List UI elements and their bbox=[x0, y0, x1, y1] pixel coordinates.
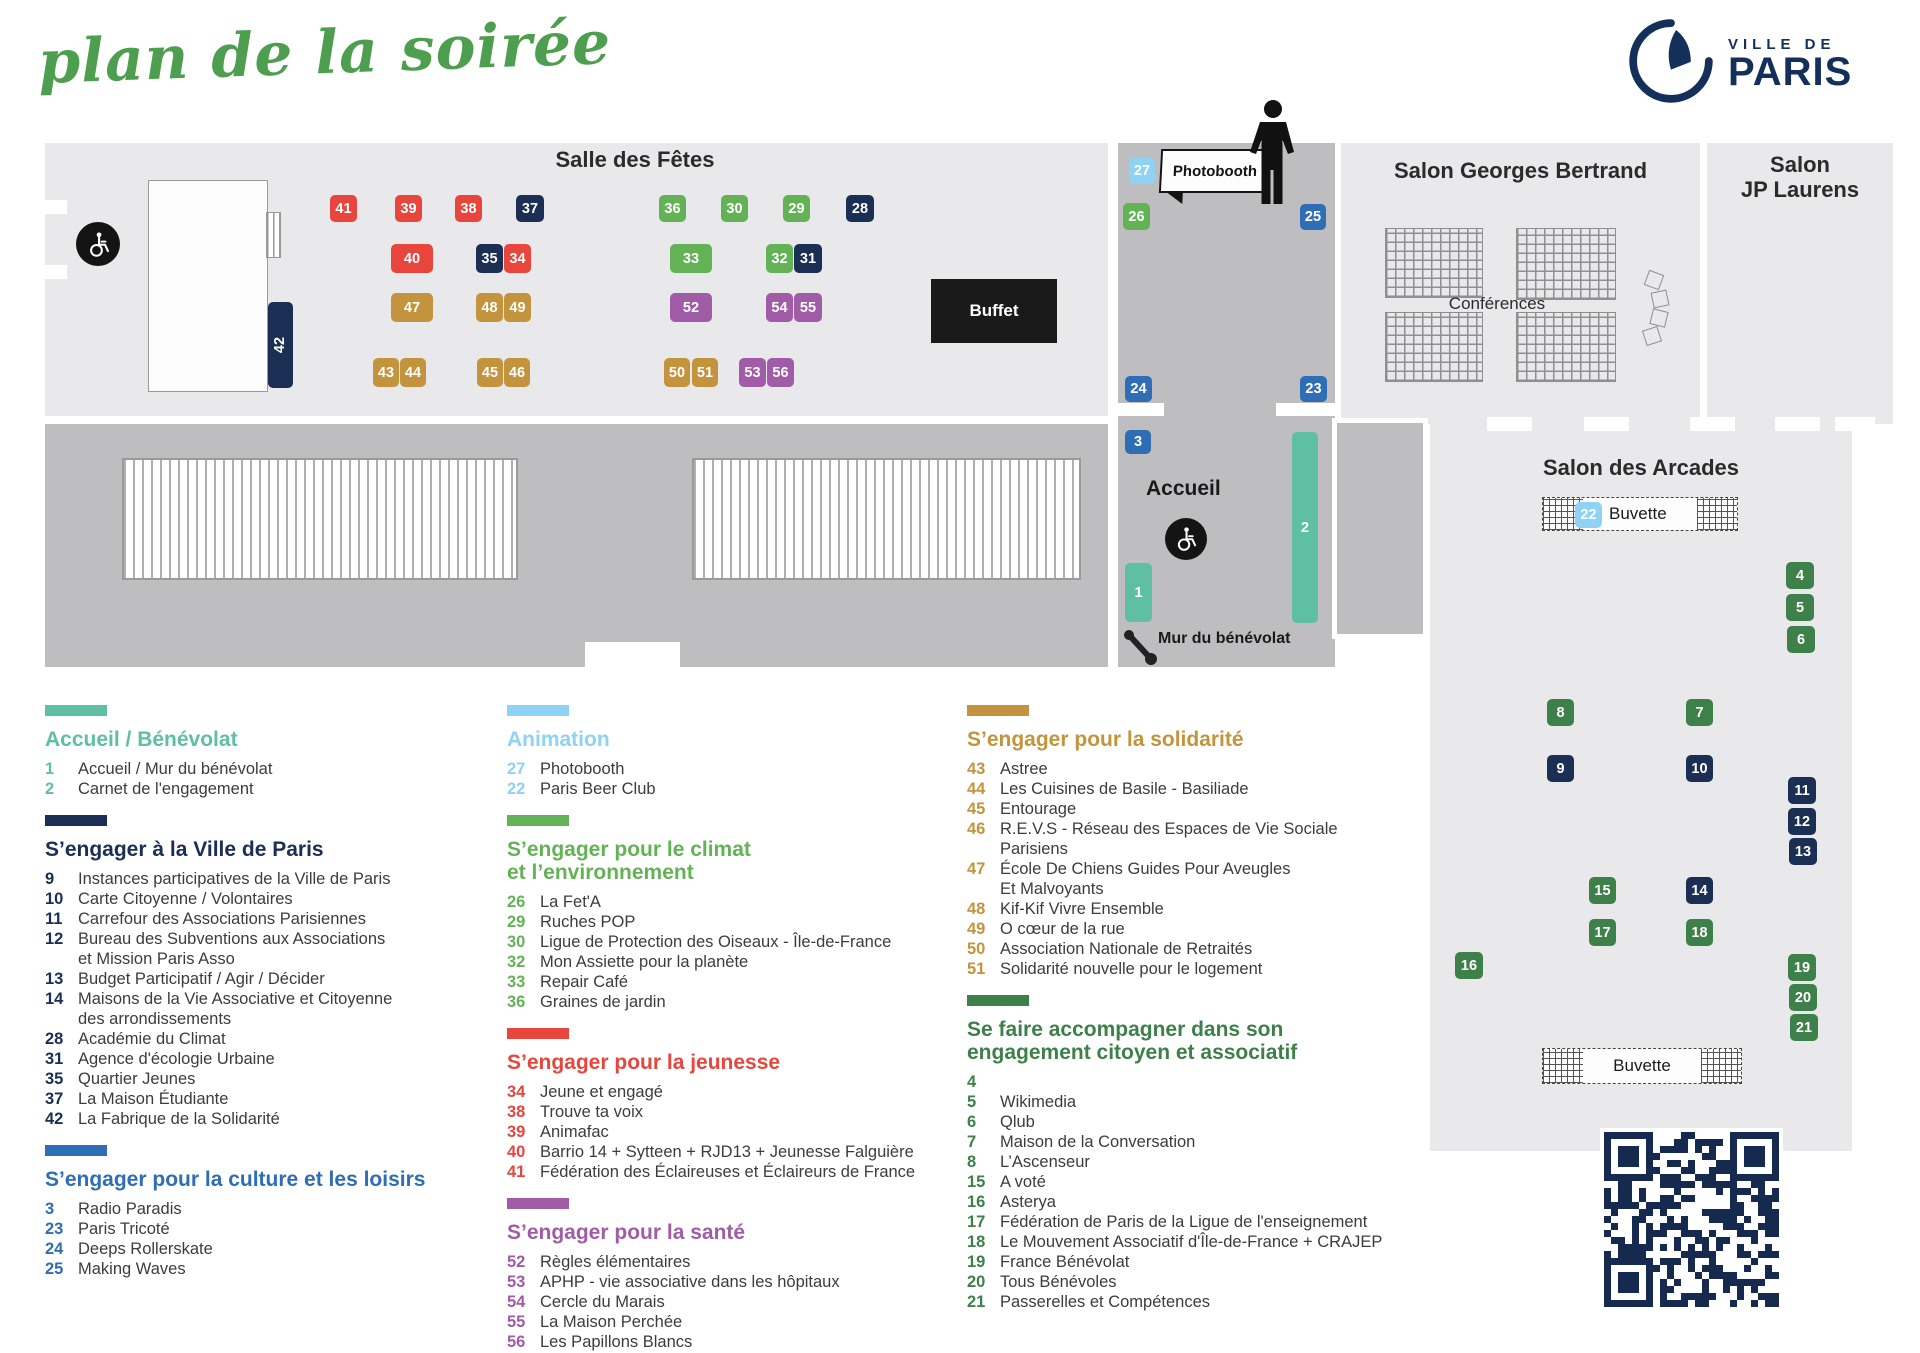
legend-item-label: Repair Café bbox=[540, 972, 628, 992]
legend-item: 54Cercle du Marais bbox=[507, 1292, 962, 1312]
legend-item: 31Agence d'écologie Urbaine bbox=[45, 1049, 495, 1069]
legend-item-number: 49 bbox=[967, 919, 1000, 939]
booth-23: 23 bbox=[1300, 376, 1327, 402]
booth-17: 17 bbox=[1589, 919, 1616, 946]
legend-item-label: Fédération des Éclaireuses et Éclaireurs… bbox=[540, 1162, 915, 1182]
legend-item-label: Wikimedia bbox=[1000, 1092, 1076, 1112]
booth-11: 11 bbox=[1788, 777, 1816, 804]
legend-item-number: 16 bbox=[967, 1192, 1000, 1212]
booth-43: 43 bbox=[373, 358, 399, 387]
paris-boat-icon bbox=[1628, 18, 1714, 109]
legend-section: S’engager pour la santé52Règles élémenta… bbox=[507, 1198, 962, 1352]
legend-item-number: 17 bbox=[967, 1212, 1000, 1232]
booth-40: 40 bbox=[391, 244, 433, 273]
legend-item-label: Quartier Jeunes bbox=[78, 1069, 195, 1089]
legend-item-number: 1 bbox=[45, 759, 78, 779]
legend-item: 48Kif-Kif Vivre Ensemble bbox=[967, 899, 1447, 919]
legend-item-number: 13 bbox=[45, 969, 78, 989]
legend-item: 46R.E.V.S - Réseau des Espaces de Vie So… bbox=[967, 819, 1447, 859]
legend-item: 49O cœur de la rue bbox=[967, 919, 1447, 939]
legend-item-label: Cercle du Marais bbox=[540, 1292, 665, 1312]
booth-42: 42 bbox=[268, 302, 293, 388]
legend-item-label: L’Ascenseur bbox=[1000, 1152, 1090, 1172]
booth-4: 4 bbox=[1786, 562, 1814, 589]
legend-heading: S’engager pour la culture et les loisirs bbox=[45, 1168, 495, 1191]
legend-item-label: Ligue de Protection des Oiseaux - Île-de… bbox=[540, 932, 891, 952]
legend-item-label: Paris Beer Club bbox=[540, 779, 656, 799]
legend-swatch-lightblue bbox=[507, 705, 569, 716]
legend-heading: S’engager à la Ville de Paris bbox=[45, 838, 495, 861]
buvette-label: Buvette bbox=[1609, 504, 1667, 524]
legend-item: 33Repair Café bbox=[507, 972, 962, 992]
legend-item-number: 38 bbox=[507, 1102, 540, 1122]
booth-9: 9 bbox=[1547, 755, 1574, 782]
legend-items: 1Accueil / Mur du bénévolat2Carnet de l'… bbox=[45, 759, 495, 799]
legend-items: 34Jeune et engagé38Trouve ta voix39Anima… bbox=[507, 1082, 962, 1182]
legend-item: 23Paris Tricoté bbox=[45, 1219, 495, 1239]
legend-item: 26La Fet'A bbox=[507, 892, 962, 912]
legend-item-label: Asterya bbox=[1000, 1192, 1056, 1212]
legend-items: 3Radio Paradis23Paris Tricoté24Deeps Rol… bbox=[45, 1199, 495, 1279]
booth-32: 32 bbox=[766, 244, 793, 273]
booth-10: 10 bbox=[1686, 755, 1713, 782]
legend-item-label: La Maison Perchée bbox=[540, 1312, 682, 1332]
legend-item-label: Maison de la Conversation bbox=[1000, 1132, 1195, 1152]
booth-37: 37 bbox=[516, 195, 544, 222]
legend-item-label: Kif-Kif Vivre Ensemble bbox=[1000, 899, 1164, 919]
legend-item-label: Bureau des Subventions aux Associations … bbox=[78, 929, 385, 969]
legend-item-label: Les Papillons Blancs bbox=[540, 1332, 692, 1352]
legend-item: 27Photobooth bbox=[507, 759, 962, 779]
legend-item: 41Fédération des Éclaireuses et Éclaireu… bbox=[507, 1162, 962, 1182]
plan-canvas: plan de la soirée VILLE DE PARIS Salle d… bbox=[0, 0, 1920, 1353]
booth-19: 19 bbox=[1788, 954, 1816, 981]
qr-code bbox=[1600, 1128, 1783, 1311]
legend-item-number: 20 bbox=[967, 1272, 1000, 1292]
legend-item: 10Carte Citoyenne / Volontaires bbox=[45, 889, 495, 909]
booth-39: 39 bbox=[395, 195, 422, 222]
legend-item: 15A voté bbox=[967, 1172, 1447, 1192]
legend-item-number: 2 bbox=[45, 779, 78, 799]
booth-8: 8 bbox=[1547, 699, 1574, 726]
buvette-bar-bottom: Buvette bbox=[1542, 1048, 1742, 1084]
conference-chairs bbox=[1385, 312, 1483, 382]
legend-item-label: France Bénévolat bbox=[1000, 1252, 1129, 1272]
legend-item-label: Les Cuisines de Basile - Basiliade bbox=[1000, 779, 1249, 799]
door-gap bbox=[1487, 417, 1532, 431]
legend-item-label: Carte Citoyenne / Volontaires bbox=[78, 889, 293, 909]
door-gap bbox=[1690, 417, 1735, 431]
legend-item-number: 52 bbox=[507, 1252, 540, 1272]
legend-item-number: 32 bbox=[507, 952, 540, 972]
legend-item: 36Graines de jardin bbox=[507, 992, 962, 1012]
conference-chairs bbox=[1516, 228, 1616, 300]
legend-item: 35Quartier Jeunes bbox=[45, 1069, 495, 1089]
legend-item: 30Ligue de Protection des Oiseaux - Île-… bbox=[507, 932, 962, 952]
legend-item-number: 15 bbox=[967, 1172, 1000, 1192]
legend-item-number: 22 bbox=[507, 779, 540, 799]
legend-item: 17Fédération de Paris de la Ligue de l'e… bbox=[967, 1212, 1447, 1232]
door-gap bbox=[1118, 403, 1164, 416]
legend-item: 16Asterya bbox=[967, 1192, 1447, 1212]
legend-item: 8L’Ascenseur bbox=[967, 1152, 1447, 1172]
legend-col-3: S’engager pour la solidarité43Astree44Le… bbox=[967, 705, 1447, 1328]
buvette-label: Buvette bbox=[1613, 1056, 1671, 1076]
legend-item-label: La Maison Étudiante bbox=[78, 1089, 228, 1109]
legend-item: 19France Bénévolat bbox=[967, 1252, 1447, 1272]
jp-laurens-title: Salon JP Laurens bbox=[1707, 152, 1893, 202]
legend-swatch-gold bbox=[967, 705, 1029, 716]
legend-item-number: 36 bbox=[507, 992, 540, 1012]
booth-41: 41 bbox=[330, 195, 357, 222]
legend-section: S’engager pour la solidarité43Astree44Le… bbox=[967, 705, 1447, 979]
logo-paris: PARIS bbox=[1728, 53, 1852, 91]
legend-item-number: 40 bbox=[507, 1142, 540, 1162]
legend-item-number: 54 bbox=[507, 1292, 540, 1312]
legend-item: 40Barrio 14 + Sytteen + RJD13 + Jeunesse… bbox=[507, 1142, 962, 1162]
booth-15: 15 bbox=[1589, 877, 1616, 904]
booth-52: 52 bbox=[670, 293, 712, 322]
booth-34: 34 bbox=[504, 244, 531, 273]
legend-item-label: Accueil / Mur du bénévolat bbox=[78, 759, 272, 779]
legend-item: 39Animafac bbox=[507, 1122, 962, 1142]
booth-25: 25 bbox=[1300, 204, 1326, 230]
door-gap bbox=[1584, 417, 1629, 431]
door-gap bbox=[1276, 403, 1335, 416]
legend-item: 32Mon Assiette pour la planète bbox=[507, 952, 962, 972]
legend-col-2: Animation27Photobooth22Paris Beer ClubS’… bbox=[507, 705, 962, 1353]
booth-7: 7 bbox=[1686, 699, 1713, 726]
booth-20: 20 bbox=[1789, 984, 1817, 1011]
booth-47: 47 bbox=[391, 293, 433, 322]
legend-item: 11Carrefour des Associations Parisiennes bbox=[45, 909, 495, 929]
legend-swatch-navy bbox=[45, 815, 107, 826]
legend-item-number: 24 bbox=[45, 1239, 78, 1259]
legend-items: 45Wikimedia6Qlub7Maison de la Conversati… bbox=[967, 1072, 1447, 1312]
legend-item-label: Le Mouvement Associatif d'Île-de-France … bbox=[1000, 1232, 1382, 1252]
legend-swatch-red bbox=[507, 1028, 569, 1039]
legend-item-number: 18 bbox=[967, 1232, 1000, 1252]
legend-heading: S’engager pour le climat et l’environnem… bbox=[507, 838, 962, 884]
door-gap bbox=[1835, 417, 1875, 431]
booth-45: 45 bbox=[477, 358, 503, 387]
booth-38: 38 bbox=[455, 195, 482, 222]
legend-item: 43Astree bbox=[967, 759, 1447, 779]
legend-item-label: Solidarité nouvelle pour le logement bbox=[1000, 959, 1262, 979]
booth-46: 46 bbox=[504, 358, 530, 387]
booth-3: 3 bbox=[1125, 430, 1151, 454]
legend-item-number: 45 bbox=[967, 799, 1000, 819]
trellis-left bbox=[122, 458, 518, 580]
legend-item-number: 41 bbox=[507, 1162, 540, 1182]
legend-item: 5Wikimedia bbox=[967, 1092, 1447, 1112]
booth-18: 18 bbox=[1686, 919, 1713, 946]
booth-56: 56 bbox=[767, 358, 794, 387]
booth-1: 1 bbox=[1125, 563, 1152, 622]
logo-text: VILLE DE PARIS bbox=[1728, 36, 1852, 91]
mur-benevolat-label: Mur du bénévolat bbox=[1158, 630, 1290, 648]
legend-item-label: Carnet de l'engagement bbox=[78, 779, 254, 799]
salle-des-fetes-title: Salle des Fêtes bbox=[460, 147, 810, 172]
legend-item-label: Graines de jardin bbox=[540, 992, 666, 1012]
legend-item-label: Maisons de la Vie Associative et Citoyen… bbox=[78, 989, 392, 1029]
legend-item: 52Règles élémentaires bbox=[507, 1252, 962, 1272]
booth-35: 35 bbox=[476, 244, 503, 273]
legend-section: S’engager pour la jeunesse34Jeune et eng… bbox=[507, 1028, 962, 1182]
person-silhouette-icon bbox=[1250, 100, 1296, 211]
legend-item: 28Académie du Climat bbox=[45, 1029, 495, 1049]
legend-item-number: 19 bbox=[967, 1252, 1000, 1272]
legend-item-label: Animafac bbox=[540, 1122, 609, 1142]
booth-16: 16 bbox=[1455, 952, 1483, 979]
legend-item: 13Budget Participatif / Agir / Décider bbox=[45, 969, 495, 989]
legend-item-label: Association Nationale de Retraités bbox=[1000, 939, 1252, 959]
speaker-chair bbox=[1651, 290, 1670, 309]
legend-item-number: 6 bbox=[967, 1112, 1000, 1132]
legend-item-label: Fédération de Paris de la Ligue de l'ens… bbox=[1000, 1212, 1367, 1232]
legend-item: 6Qlub bbox=[967, 1112, 1447, 1132]
legend-item-number: 43 bbox=[967, 759, 1000, 779]
legend-item: 47École De Chiens Guides Pour Aveugles E… bbox=[967, 859, 1447, 899]
legend-item-number: 33 bbox=[507, 972, 540, 992]
legend-items: 52Règles élémentaires53APHP - vie associ… bbox=[507, 1252, 962, 1352]
legend-item-number: 37 bbox=[45, 1089, 78, 1109]
legend-item: 53APHP - vie associative dans les hôpita… bbox=[507, 1272, 962, 1292]
legend-swatch-teal bbox=[45, 705, 107, 716]
booth-51: 51 bbox=[692, 358, 718, 387]
booth-22: 22 bbox=[1575, 502, 1602, 528]
door-gap bbox=[1775, 417, 1820, 431]
legend-item-number: 27 bbox=[507, 759, 540, 779]
legend-section: S’engager pour la culture et les loisirs… bbox=[45, 1145, 495, 1279]
legend-item: 55La Maison Perchée bbox=[507, 1312, 962, 1332]
legend-item-number: 42 bbox=[45, 1109, 78, 1129]
legend-item: 56Les Papillons Blancs bbox=[507, 1332, 962, 1352]
legend-item: 44Les Cuisines de Basile - Basiliade bbox=[967, 779, 1447, 799]
booth-49: 49 bbox=[504, 293, 531, 322]
legend-item-number: 46 bbox=[967, 819, 1000, 859]
booth-44: 44 bbox=[400, 358, 426, 387]
legend-item-number: 34 bbox=[507, 1082, 540, 1102]
legend-item-number: 29 bbox=[507, 912, 540, 932]
legend-item: 1Accueil / Mur du bénévolat bbox=[45, 759, 495, 779]
mur-benevolat-icon bbox=[1120, 626, 1162, 673]
booth-5: 5 bbox=[1786, 594, 1814, 621]
legend-item-number: 35 bbox=[45, 1069, 78, 1089]
legend-item: 18Le Mouvement Associatif d'Île-de-Franc… bbox=[967, 1232, 1447, 1252]
legend-item-number: 23 bbox=[45, 1219, 78, 1239]
legend-item-number: 3 bbox=[45, 1199, 78, 1219]
legend-item-number: 8 bbox=[967, 1152, 1000, 1172]
conference-chairs bbox=[1385, 228, 1483, 298]
booth-54: 54 bbox=[766, 293, 793, 322]
legend-item-number: 30 bbox=[507, 932, 540, 952]
legend-item-number: 25 bbox=[45, 1259, 78, 1279]
legend-item: 14Maisons de la Vie Associative et Citoy… bbox=[45, 989, 495, 1029]
legend-item-label: O cœur de la rue bbox=[1000, 919, 1125, 939]
accueil-label: Accueil bbox=[1146, 477, 1221, 501]
legend-item-number: 53 bbox=[507, 1272, 540, 1292]
conference-chairs bbox=[1516, 312, 1616, 382]
booth-30: 30 bbox=[721, 195, 748, 222]
legend-item-label: Paris Tricoté bbox=[78, 1219, 170, 1239]
legend-item-label: Radio Paradis bbox=[78, 1199, 182, 1219]
conferences-label: Conférences bbox=[1437, 294, 1557, 314]
legend-item-number: 47 bbox=[967, 859, 1000, 899]
wheelchair-icon-accueil bbox=[1165, 518, 1207, 560]
booth-14: 14 bbox=[1686, 877, 1713, 904]
legend-items: 9Instances participatives de la Ville de… bbox=[45, 869, 495, 1129]
legend-col-1: Accueil / Bénévolat1Accueil / Mur du bén… bbox=[45, 705, 495, 1295]
legend-swatch-blue bbox=[45, 1145, 107, 1156]
legend-item-number: 14 bbox=[45, 989, 78, 1029]
legend-item: 24Deeps Rollerskate bbox=[45, 1239, 495, 1259]
legend-item-label: Mon Assiette pour la planète bbox=[540, 952, 748, 972]
legend-item-number: 10 bbox=[45, 889, 78, 909]
legend-heading: Se faire accompagner dans son engagement… bbox=[967, 1018, 1447, 1064]
legend-item-label: APHP - vie associative dans les hôpitaux bbox=[540, 1272, 840, 1292]
legend-item-number: 31 bbox=[45, 1049, 78, 1069]
legend-item-label: La Fet'A bbox=[540, 892, 601, 912]
legend-item-label: A voté bbox=[1000, 1172, 1046, 1192]
legend-item-number: 12 bbox=[45, 929, 78, 969]
legend-heading: S’engager pour la solidarité bbox=[967, 728, 1447, 751]
legend-item-label: Barrio 14 + Sytteen + RJD13 + Jeunesse F… bbox=[540, 1142, 914, 1162]
legend-item: 25Making Waves bbox=[45, 1259, 495, 1279]
legend-item-label: Making Waves bbox=[78, 1259, 186, 1279]
trellis-right bbox=[692, 458, 1081, 580]
legend-items: 43Astree44Les Cuisines de Basile - Basil… bbox=[967, 759, 1447, 979]
legend-swatch-purple bbox=[507, 1198, 569, 1209]
legend-item-label: Deeps Rollerskate bbox=[78, 1239, 213, 1259]
legend-item-label: Qlub bbox=[1000, 1112, 1035, 1132]
legend-item-label: Règles élémentaires bbox=[540, 1252, 690, 1272]
booth-50: 50 bbox=[664, 358, 690, 387]
page-title: plan de la soirée bbox=[37, 8, 612, 98]
legend-section: Accueil / Bénévolat1Accueil / Mur du bén… bbox=[45, 705, 495, 799]
legend-item-number: 39 bbox=[507, 1122, 540, 1142]
stage bbox=[148, 180, 268, 392]
legend-heading: Accueil / Bénévolat bbox=[45, 728, 495, 751]
legend-item-number: 21 bbox=[967, 1292, 1000, 1312]
door-gap bbox=[45, 265, 67, 279]
legend-item-number: 4 bbox=[967, 1072, 1000, 1092]
legend-item: 42La Fabrique de la Solidarité bbox=[45, 1109, 495, 1129]
legend-item-label: Tous Bénévoles bbox=[1000, 1272, 1117, 1292]
legend-item-number: 28 bbox=[45, 1029, 78, 1049]
legend-item: 21Passerelles et Compétences bbox=[967, 1292, 1447, 1312]
stage-stairs bbox=[266, 212, 281, 258]
legend-item: 4 bbox=[967, 1072, 1447, 1092]
legend-item-label: École De Chiens Guides Pour Aveugles Et … bbox=[1000, 859, 1290, 899]
legend-item-number: 7 bbox=[967, 1132, 1000, 1152]
legend-item-label: Instances participatives de la Ville de … bbox=[78, 869, 390, 889]
legend-item-label: Ruches POP bbox=[540, 912, 635, 932]
legend-heading: S’engager pour la jeunesse bbox=[507, 1051, 962, 1074]
legend-heading: S’engager pour la santé bbox=[507, 1221, 962, 1244]
legend-item-label: Trouve ta voix bbox=[540, 1102, 643, 1122]
qr-grid bbox=[1604, 1132, 1779, 1307]
booth-26: 26 bbox=[1123, 203, 1150, 230]
legend-item-label: Agence d'écologie Urbaine bbox=[78, 1049, 275, 1069]
legend-item: 12Bureau des Subventions aux Association… bbox=[45, 929, 495, 969]
legend-swatch-green bbox=[507, 815, 569, 826]
legend-item: 29Ruches POP bbox=[507, 912, 962, 932]
legend-item: 20Tous Bénévoles bbox=[967, 1272, 1447, 1292]
legend-item: 50Association Nationale de Retraités bbox=[967, 939, 1447, 959]
legend-item: 7Maison de la Conversation bbox=[967, 1132, 1447, 1152]
legend-item-label: Jeune et engagé bbox=[540, 1082, 663, 1102]
booth-24: 24 bbox=[1125, 376, 1152, 402]
booth-6: 6 bbox=[1787, 626, 1815, 653]
booth-48: 48 bbox=[476, 293, 503, 322]
buffet-table: Buffet bbox=[931, 279, 1057, 343]
legend-item-label: La Fabrique de la Solidarité bbox=[78, 1109, 280, 1129]
booth-13: 13 bbox=[1789, 838, 1817, 865]
door-gap bbox=[45, 200, 67, 214]
legend-item-label: Astree bbox=[1000, 759, 1048, 779]
legend-item-label: Académie du Climat bbox=[78, 1029, 226, 1049]
legend-item-label: Carrefour des Associations Parisiennes bbox=[78, 909, 366, 929]
georges-bertrand-title: Salon Georges Bertrand bbox=[1341, 158, 1700, 183]
booth-12: 12 bbox=[1788, 808, 1816, 835]
legend-items: 26La Fet'A29Ruches POP30Ligue de Protect… bbox=[507, 892, 962, 1012]
legend-item-number: 5 bbox=[967, 1092, 1000, 1112]
legend-item: 37La Maison Étudiante bbox=[45, 1089, 495, 1109]
legend-item-label: Passerelles et Compétences bbox=[1000, 1292, 1210, 1312]
ville-de-paris-logo: VILLE DE PARIS bbox=[1628, 18, 1852, 109]
legend-section: Animation27Photobooth22Paris Beer Club bbox=[507, 705, 962, 799]
booth-28: 28 bbox=[846, 195, 874, 222]
booth-36: 36 bbox=[659, 195, 686, 222]
legend-item: 51Solidarité nouvelle pour le logement bbox=[967, 959, 1447, 979]
legend-item-label: Budget Participatif / Agir / Décider bbox=[78, 969, 325, 989]
booth-21: 21 bbox=[1790, 1014, 1818, 1041]
door-gap bbox=[585, 642, 680, 667]
legend-item: 38Trouve ta voix bbox=[507, 1102, 962, 1122]
legend-section: S’engager à la Ville de Paris9Instances … bbox=[45, 815, 495, 1129]
booth-55: 55 bbox=[794, 293, 822, 322]
legend-item-number: 11 bbox=[45, 909, 78, 929]
legend-item-number: 56 bbox=[507, 1332, 540, 1352]
legend-item: 3Radio Paradis bbox=[45, 1199, 495, 1219]
legend-heading: Animation bbox=[507, 728, 962, 751]
legend-item: 9Instances participatives de la Ville de… bbox=[45, 869, 495, 889]
legend-item-number: 51 bbox=[967, 959, 1000, 979]
buvette-bar-top: 22 Buvette bbox=[1542, 497, 1738, 531]
legend-item-label: R.E.V.S - Réseau des Espaces de Vie Soci… bbox=[1000, 819, 1338, 859]
legend-item-number: 26 bbox=[507, 892, 540, 912]
booth-2: 2 bbox=[1292, 432, 1318, 623]
legend-item: 34Jeune et engagé bbox=[507, 1082, 962, 1102]
booth-53: 53 bbox=[739, 358, 766, 387]
booth-29: 29 bbox=[783, 195, 810, 222]
cloakroom-box bbox=[1332, 418, 1428, 639]
legend-section: Se faire accompagner dans son engagement… bbox=[967, 995, 1447, 1312]
wheelchair-icon bbox=[76, 222, 120, 266]
legend-items: 27Photobooth22Paris Beer Club bbox=[507, 759, 962, 799]
legend-item-number: 48 bbox=[967, 899, 1000, 919]
booth-27: 27 bbox=[1129, 158, 1155, 184]
legend-item-label: Entourage bbox=[1000, 799, 1076, 819]
legend-item: 2Carnet de l'engagement bbox=[45, 779, 495, 799]
arcades-title: Salon des Arcades bbox=[1430, 455, 1852, 480]
booth-33: 33 bbox=[670, 244, 712, 273]
legend-swatch-dgreen bbox=[967, 995, 1029, 1006]
legend-item-label: Photobooth bbox=[540, 759, 624, 779]
legend-item-number: 44 bbox=[967, 779, 1000, 799]
legend-item-number: 9 bbox=[45, 869, 78, 889]
